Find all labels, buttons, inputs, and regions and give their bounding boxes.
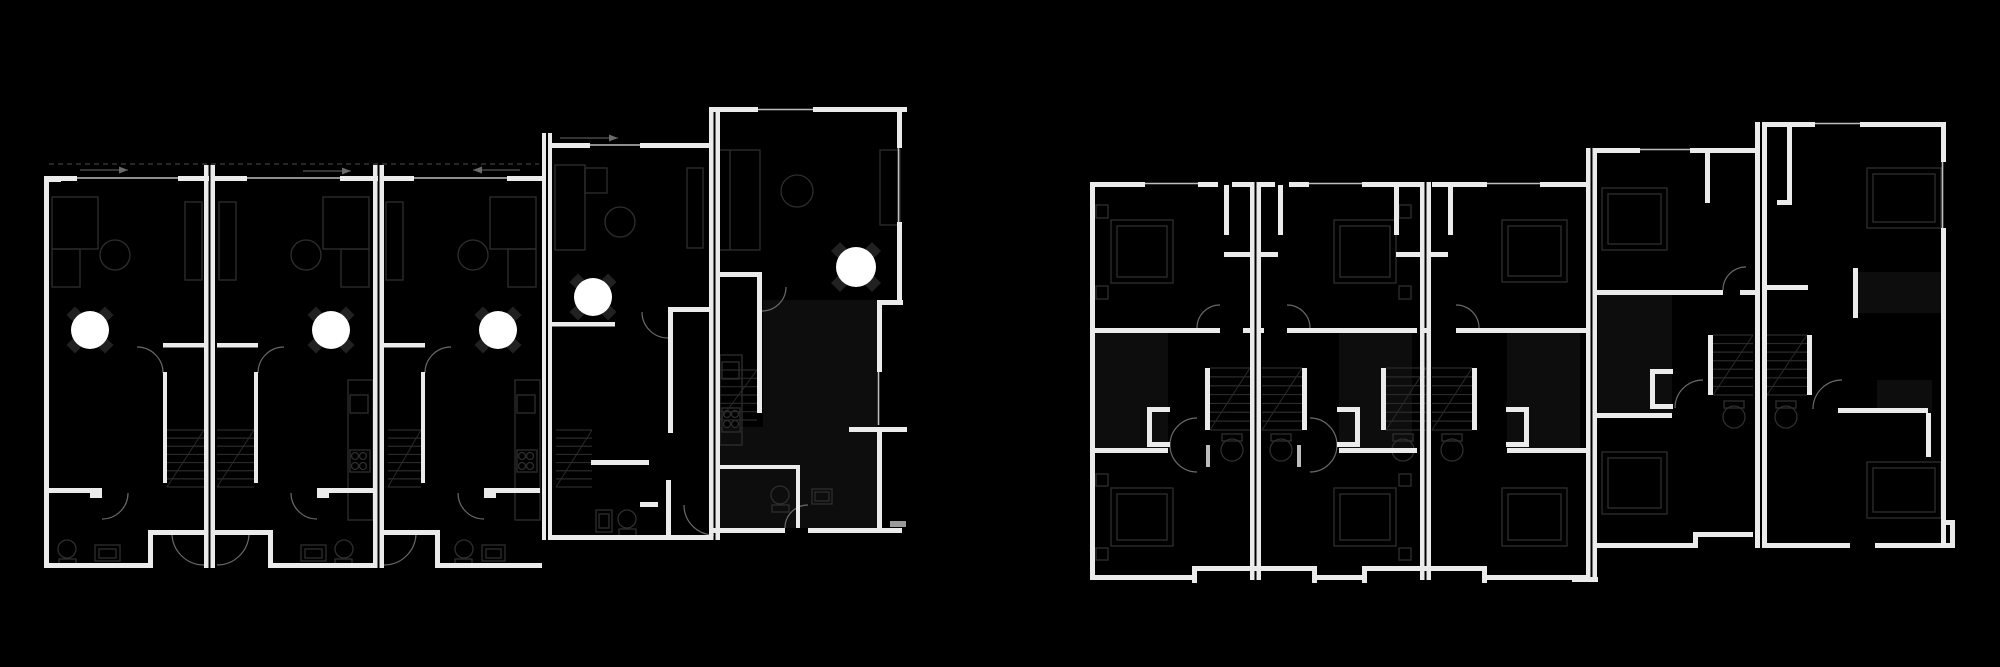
floor-plan-page [0,0,2000,667]
floor-plan-svg [0,0,2000,667]
upper-floor-row [1090,122,1955,583]
ground-floor-row [44,107,907,568]
